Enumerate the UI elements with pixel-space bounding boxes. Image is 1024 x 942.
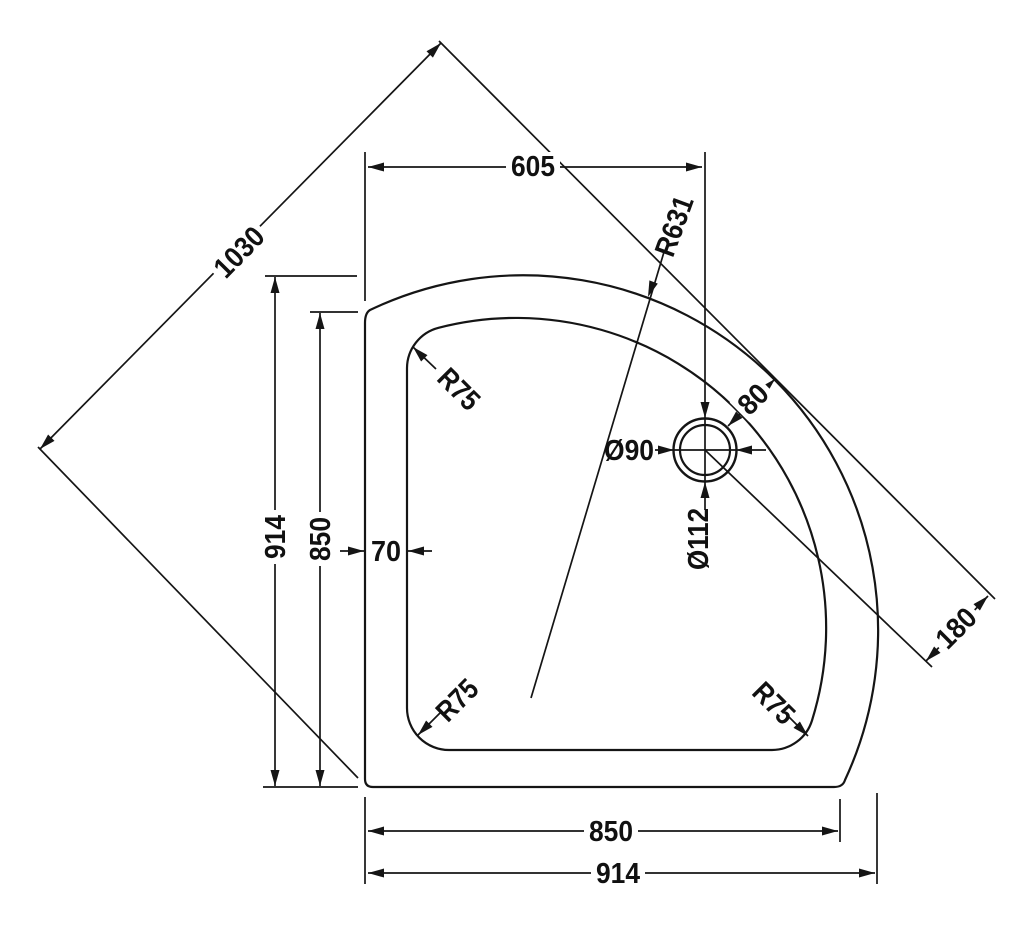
arrow-914-bottom-right xyxy=(859,869,875,878)
arrow-70-left xyxy=(348,547,364,556)
arrow-70-right xyxy=(408,547,424,556)
arrow-914-left-bottom xyxy=(271,770,280,786)
dim-text-d90: Ø90 xyxy=(604,435,654,467)
label-overall-depth: 914 xyxy=(260,510,292,564)
label-inner-depth: 850 xyxy=(305,512,337,566)
label-corner-radius-bottom-right: R75 xyxy=(746,676,801,731)
arrow-605-left xyxy=(368,163,384,172)
arrow-914-bottom-left xyxy=(368,869,384,878)
dim-text-914-bottom: 914 xyxy=(596,858,640,890)
dim-text-850-bottom: 850 xyxy=(589,816,633,848)
arrow-r631 xyxy=(648,280,658,297)
ext-waste-diagonal xyxy=(705,450,932,667)
dim-text-914-left: 914 xyxy=(260,515,292,559)
dim-text-d112: Ø112 xyxy=(683,508,715,570)
dim-text-r75-br: R75 xyxy=(746,676,801,731)
label-inner-width: 850 xyxy=(584,816,638,848)
dim-text-r631: R631 xyxy=(649,192,700,261)
dim-text-r75-bl: R75 xyxy=(430,673,485,728)
label-corner-radius-top-left: R75 xyxy=(431,362,486,417)
ext-diagonal-corner xyxy=(38,447,358,778)
arrow-d90-left xyxy=(658,446,674,455)
dim-text-r75-tl: R75 xyxy=(431,362,486,417)
arrow-d112-bottom xyxy=(701,482,710,498)
arrow-850-left-bottom xyxy=(316,770,325,786)
label-diagonal: 1030 xyxy=(205,218,274,288)
arrow-914-left-top xyxy=(271,277,280,293)
label-top-width: 605 xyxy=(506,151,560,183)
dim-text-70: 70 xyxy=(371,536,401,568)
technical-drawing-canvas: 605 1030 R631 R75 R75 R75 Ø90 Ø112 80 xyxy=(0,0,1024,942)
label-rim-width: 70 xyxy=(371,536,401,568)
dim-text-605: 605 xyxy=(511,151,555,183)
arrow-d112-top xyxy=(701,402,710,418)
label-overall-width: 914 xyxy=(591,858,645,890)
label-front-radius: R631 xyxy=(649,192,700,261)
ext-diagonal-tangent xyxy=(439,41,995,599)
arrow-605-right xyxy=(686,163,702,172)
dim-text-850-left: 850 xyxy=(305,517,337,561)
arrow-850-left-top xyxy=(316,313,325,329)
label-waste-flange-diameter: Ø112 xyxy=(683,508,715,570)
shower-tray-drawing: 605 1030 R631 R75 R75 R75 Ø90 Ø112 80 xyxy=(0,0,1024,942)
label-waste-hole-diameter: Ø90 xyxy=(604,435,654,467)
arrow-850-bottom-left xyxy=(368,827,384,836)
dimension-labels: 605 1030 R631 R75 R75 R75 Ø90 Ø112 80 xyxy=(205,151,986,890)
arrow-d90-right xyxy=(736,446,752,455)
label-corner-radius-bottom-left: R75 xyxy=(430,673,485,728)
arrow-850-bottom-right xyxy=(822,827,838,836)
